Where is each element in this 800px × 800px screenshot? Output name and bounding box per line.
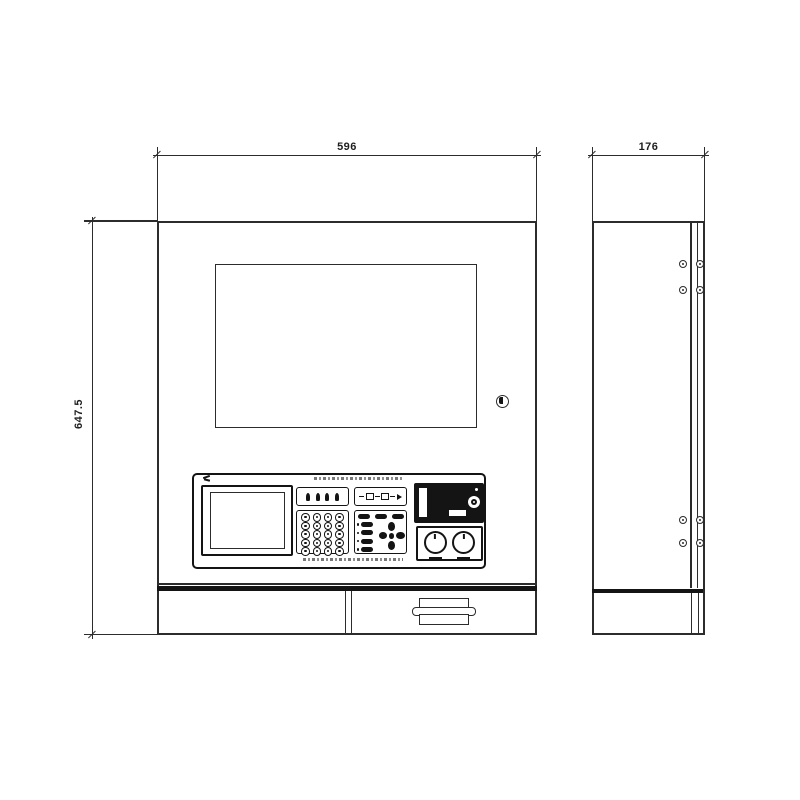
keypad-key bbox=[324, 530, 333, 539]
function-pill-column bbox=[357, 522, 375, 552]
dpad-up-button bbox=[388, 522, 395, 531]
top-pill-row bbox=[358, 514, 404, 520]
keypad-key bbox=[324, 547, 333, 556]
extension-line bbox=[84, 634, 157, 635]
side-door-edge-line bbox=[697, 221, 698, 588]
hinge-screw-icon bbox=[696, 516, 704, 524]
illegible-keypad-caption-text bbox=[303, 558, 403, 561]
control-knob-assembly bbox=[452, 531, 475, 560]
side-bottom-door-line bbox=[691, 593, 692, 633]
control-knob-icon bbox=[452, 531, 475, 554]
function-pill bbox=[375, 514, 387, 519]
door-bottom-line bbox=[157, 583, 537, 585]
function-pill-row bbox=[357, 547, 375, 552]
keypad-key bbox=[313, 530, 322, 539]
keypad-key bbox=[301, 530, 310, 539]
keypad-key bbox=[301, 547, 310, 556]
side-depth-dimension-line bbox=[588, 155, 709, 156]
keypad-key bbox=[301, 539, 310, 548]
front-width-dimension-line bbox=[153, 155, 541, 156]
keypad-grid bbox=[297, 511, 348, 557]
dpad-center-button bbox=[389, 533, 394, 539]
function-pill-row bbox=[357, 522, 375, 527]
hinge-screw-icon bbox=[679, 539, 687, 547]
extension-line bbox=[84, 220, 157, 221]
side-depth-dimension-label: 176 bbox=[592, 141, 705, 153]
hinge-screw-icon bbox=[679, 286, 687, 294]
bottom-divider-line bbox=[351, 591, 353, 633]
keypad-key bbox=[324, 513, 333, 522]
numeric-keypad-panel bbox=[296, 510, 349, 554]
keypad-key bbox=[313, 522, 322, 531]
indicator-glyph-icon bbox=[316, 493, 320, 501]
keypad-key bbox=[335, 513, 344, 522]
indicator-glyph-icon bbox=[325, 493, 329, 501]
function-pill bbox=[358, 514, 370, 519]
extension-line bbox=[592, 147, 593, 221]
lock-keyhole bbox=[499, 397, 504, 404]
front-trim-band bbox=[157, 586, 537, 591]
control-knob-icon bbox=[424, 531, 447, 554]
indicator-dot bbox=[357, 523, 359, 525]
extension-line bbox=[536, 147, 537, 221]
function-pill-row bbox=[357, 539, 375, 544]
keypad-key bbox=[301, 513, 310, 522]
dpad-right-button bbox=[396, 532, 405, 539]
function-pill-row bbox=[357, 530, 375, 535]
keypad-key bbox=[324, 539, 333, 548]
indicator-glyph-icon bbox=[335, 493, 339, 501]
keypad-key bbox=[335, 522, 344, 531]
keypad-key bbox=[313, 539, 322, 548]
dpad bbox=[377, 520, 406, 553]
side-door-edge-line bbox=[690, 221, 692, 588]
label-holder-handle bbox=[412, 598, 476, 625]
dpad-left-button bbox=[379, 532, 388, 539]
printer-slot bbox=[449, 510, 466, 516]
chain-link-icon bbox=[355, 488, 406, 505]
keypad-key bbox=[335, 539, 344, 548]
front-height-dimension-line bbox=[92, 217, 93, 639]
hinge-screw-icon bbox=[696, 286, 704, 294]
function-pill bbox=[361, 530, 373, 535]
knob-row bbox=[418, 528, 481, 560]
keypad-key bbox=[335, 530, 344, 539]
printer-module bbox=[414, 483, 484, 523]
indicator-dot bbox=[357, 540, 359, 542]
keypad-key bbox=[301, 522, 310, 531]
keypad-key bbox=[313, 513, 322, 522]
printer-paper bbox=[419, 488, 427, 517]
console-lcd-screen bbox=[210, 492, 285, 549]
navigation-panel bbox=[354, 510, 407, 554]
zone-link-panel bbox=[354, 487, 407, 506]
technical-drawing-page: 596 176 647.5 bbox=[0, 0, 800, 800]
indicator-glyph-icon bbox=[306, 493, 310, 501]
function-pill bbox=[361, 522, 373, 527]
illegible-console-title-text bbox=[314, 477, 404, 480]
logo-mark-icon bbox=[203, 475, 211, 483]
printer-knob-icon bbox=[468, 496, 480, 508]
extension-line bbox=[157, 147, 158, 221]
function-pill bbox=[361, 539, 373, 544]
side-view-cabinet-outline bbox=[592, 221, 705, 635]
front-display-screen bbox=[215, 264, 477, 428]
control-knob-assembly bbox=[424, 531, 447, 560]
indicator-dot bbox=[357, 548, 359, 550]
function-pill bbox=[392, 514, 404, 519]
dpad-down-button bbox=[388, 541, 395, 550]
extension-line bbox=[704, 147, 705, 221]
hinge-screw-icon bbox=[696, 260, 704, 268]
knob-label-bar bbox=[429, 557, 442, 560]
indicator-icons bbox=[297, 488, 348, 505]
bottom-divider-line bbox=[345, 591, 347, 633]
front-height-dimension-label: 647.5 bbox=[73, 387, 85, 441]
side-trim-band bbox=[592, 589, 703, 593]
knob-panel bbox=[416, 526, 483, 561]
door-lock-icon bbox=[496, 395, 509, 408]
indicator-icon-panel bbox=[296, 487, 349, 506]
hinge-screw-icon bbox=[679, 516, 687, 524]
indicator-dot bbox=[357, 532, 359, 534]
function-pill bbox=[361, 547, 373, 552]
hinge-screw-icon bbox=[696, 539, 704, 547]
side-bottom-inner-edge bbox=[698, 593, 700, 633]
front-width-dimension-label: 596 bbox=[157, 141, 537, 153]
hinge-screw-icon bbox=[679, 260, 687, 268]
knob-label-bar bbox=[457, 557, 470, 560]
keypad-key bbox=[313, 547, 322, 556]
keypad-key bbox=[335, 547, 344, 556]
printer-corner-dot bbox=[475, 488, 478, 491]
keypad-key bbox=[324, 522, 333, 531]
